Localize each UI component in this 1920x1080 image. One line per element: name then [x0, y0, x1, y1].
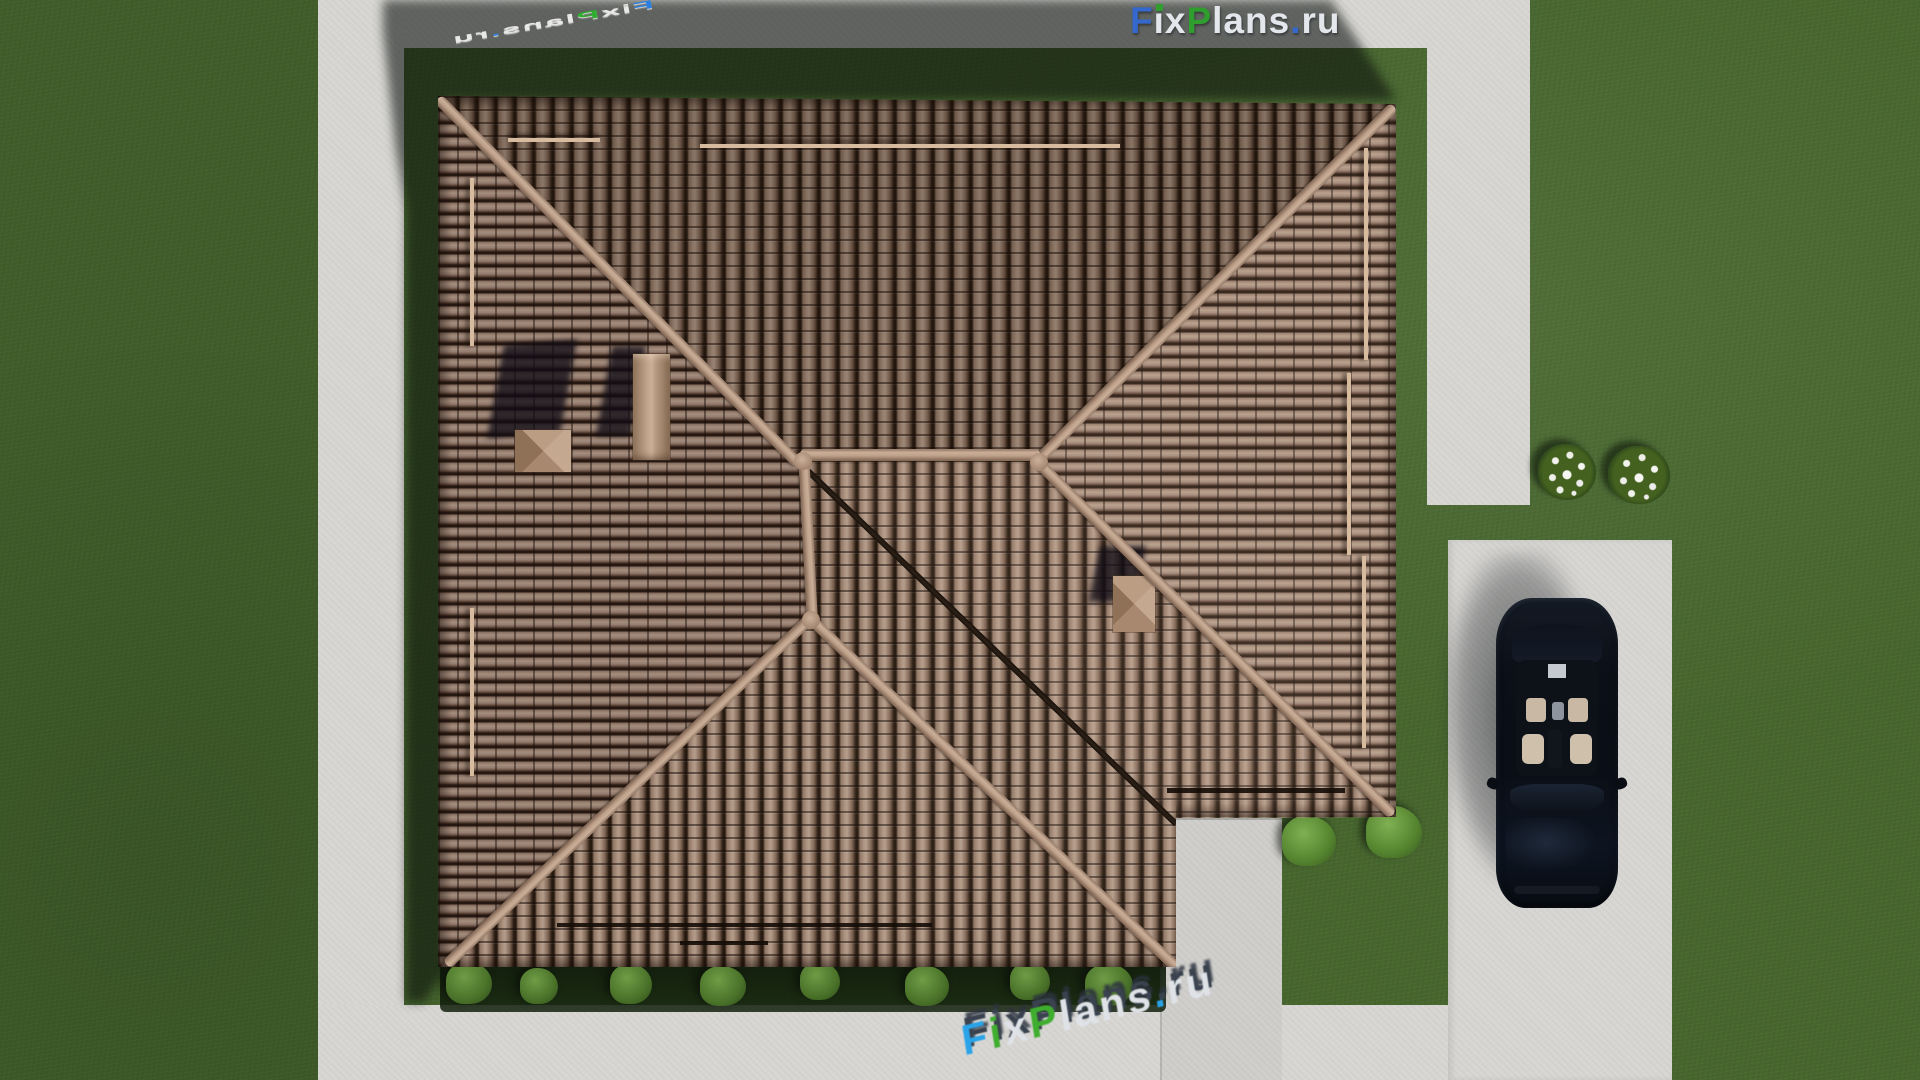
- logo-letter: P: [1186, 0, 1212, 41]
- eave-guard-bar: [1167, 788, 1345, 793]
- hedge-bush: [446, 962, 492, 1004]
- snow-guard-bar: [470, 178, 474, 346]
- car-front-highlight: [1514, 886, 1600, 894]
- lawn-left-shade: [0, 0, 318, 1080]
- ridge-junction: [1030, 453, 1048, 471]
- hedge-bush: [700, 966, 746, 1006]
- car-cabin-roof: [1516, 660, 1598, 776]
- watermark-letter: ru: [1163, 955, 1217, 1013]
- car-rear-glass: [1512, 624, 1602, 664]
- ridge-main-horizontal: [800, 449, 1040, 461]
- snow-guard-bar: [1364, 148, 1368, 360]
- ridge-junction: [794, 452, 812, 470]
- car-dashboard: [1568, 698, 1588, 722]
- logo-letter: ru: [1301, 0, 1340, 41]
- logo-letter: i: [1154, 0, 1165, 41]
- flower-bush: [1608, 446, 1670, 504]
- car-hood-shine: [1506, 818, 1606, 878]
- hedge-bush: [905, 966, 949, 1006]
- car: [1496, 598, 1618, 908]
- logo-letter: lans: [1212, 0, 1290, 41]
- car-seat: [1522, 734, 1544, 764]
- snow-guard-bar: [1347, 373, 1351, 555]
- car-windshield: [1510, 784, 1604, 814]
- car-console: [1552, 702, 1564, 720]
- brand-logo: FixPlans.ru: [1130, 0, 1340, 42]
- flower-bush: [1538, 444, 1596, 500]
- car-seat: [1570, 734, 1592, 764]
- car-console-strip: [1548, 730, 1562, 768]
- walkway-bottom: [318, 1005, 1458, 1080]
- walkway-right: [1427, 0, 1530, 505]
- walkway-left: [318, 0, 404, 1012]
- hedge-bush: [800, 962, 840, 1000]
- eave-guard-bar: [557, 923, 932, 927]
- roof-vent-cap: [1113, 576, 1155, 632]
- hedge-bush: [1010, 962, 1050, 1000]
- logo-letter: F: [1130, 0, 1154, 41]
- hedge-bush: [520, 968, 558, 1004]
- logo-letter: .: [1290, 0, 1301, 41]
- chimney-tall: [633, 354, 670, 460]
- snow-guard-bar: [470, 608, 474, 776]
- yard-bush: [1282, 816, 1336, 866]
- car-headliner-panel: [1548, 664, 1566, 678]
- snow-guard-bar: [700, 144, 1120, 148]
- patio-pad: [1160, 818, 1282, 1080]
- car-dashboard: [1526, 698, 1546, 722]
- snow-guard-bar: [1362, 556, 1366, 748]
- eave-guard-bar: [680, 941, 768, 945]
- snow-guard-bar: [508, 138, 600, 142]
- chimney-cap: [515, 430, 571, 472]
- ridge-junction: [802, 611, 820, 629]
- logo-letter: x: [1165, 0, 1187, 41]
- hedge-bush: [610, 964, 652, 1004]
- aerial-render-scene: FixPlans.ru FixPlans.ru FixPlans.ru: [0, 0, 1920, 1080]
